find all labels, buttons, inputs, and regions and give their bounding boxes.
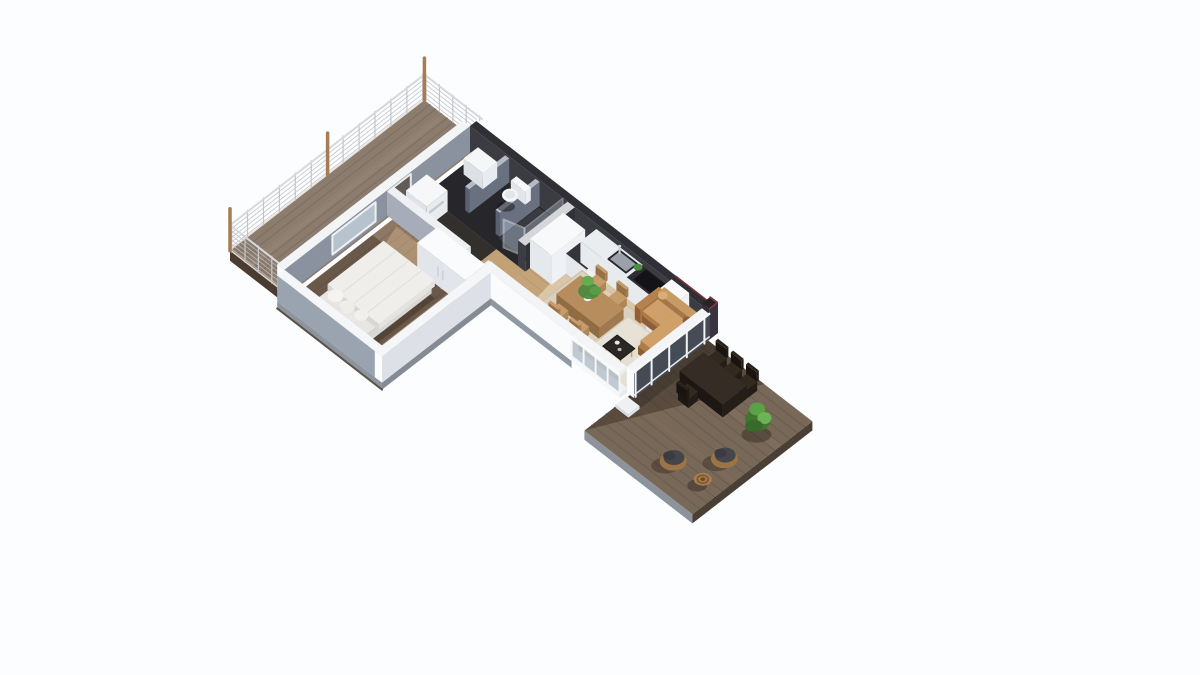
bed-pillow-2	[339, 300, 355, 313]
counter-plant	[634, 264, 643, 271]
page-background	[0, 0, 1200, 675]
coffee-table-decor	[615, 341, 620, 345]
dining-plant-3	[590, 286, 602, 295]
dining-chair-back-far-1-right-face	[605, 271, 607, 282]
dining-plant-2	[581, 276, 594, 286]
dining-chair-back-far-2-right-face	[626, 288, 628, 299]
terrace-chair-back-3-right-face	[756, 371, 758, 383]
bath-partition-right-front-face	[496, 210, 500, 237]
lounge-chair-2-cushion	[714, 449, 726, 458]
wall-bedroom-east-front-face	[375, 351, 382, 383]
bed-pillow-1	[328, 289, 344, 302]
terrace-chair-back-1-right-face	[726, 347, 728, 359]
sink-faucet-tip	[618, 245, 621, 248]
toilet-seat	[505, 191, 516, 199]
lounge-chair-1-cushion	[663, 451, 675, 460]
bush-base	[745, 420, 763, 432]
sofa-pillow-1	[658, 292, 668, 300]
wicker-table-center	[700, 477, 705, 481]
terrace-chair-back-2-right-face	[741, 359, 743, 371]
bed-pillow-3	[354, 310, 368, 321]
wall-terrace-end-front-face	[627, 367, 634, 399]
toilet-shadow	[497, 202, 515, 212]
floor-plan-3d-render	[0, 0, 1200, 675]
terrace-chair-near-back-right-face	[687, 388, 689, 400]
coffee-table-decor-2	[618, 348, 622, 351]
bath-partition-left-front-face	[465, 186, 469, 213]
